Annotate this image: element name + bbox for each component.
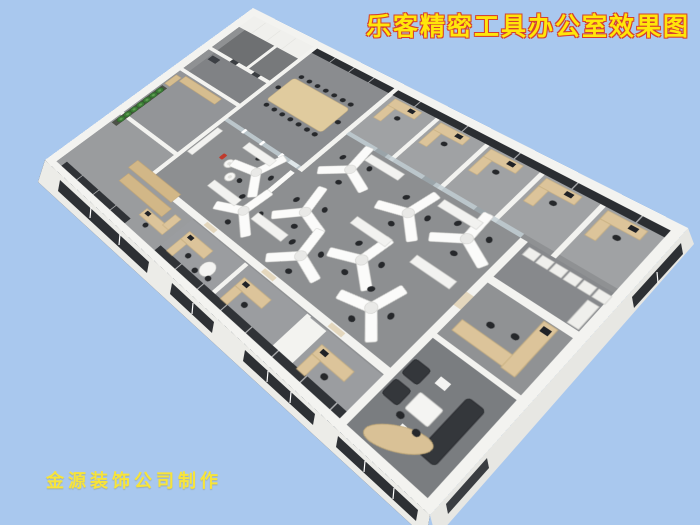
credit-watermark: 金源装饰公司制作	[46, 467, 222, 493]
page-title: 乐客精密工具办公室效果图	[366, 7, 700, 43]
rendering-canvas: 乐客精密工具办公室效果图 金源装饰公司制作	[0, 0, 700, 525]
